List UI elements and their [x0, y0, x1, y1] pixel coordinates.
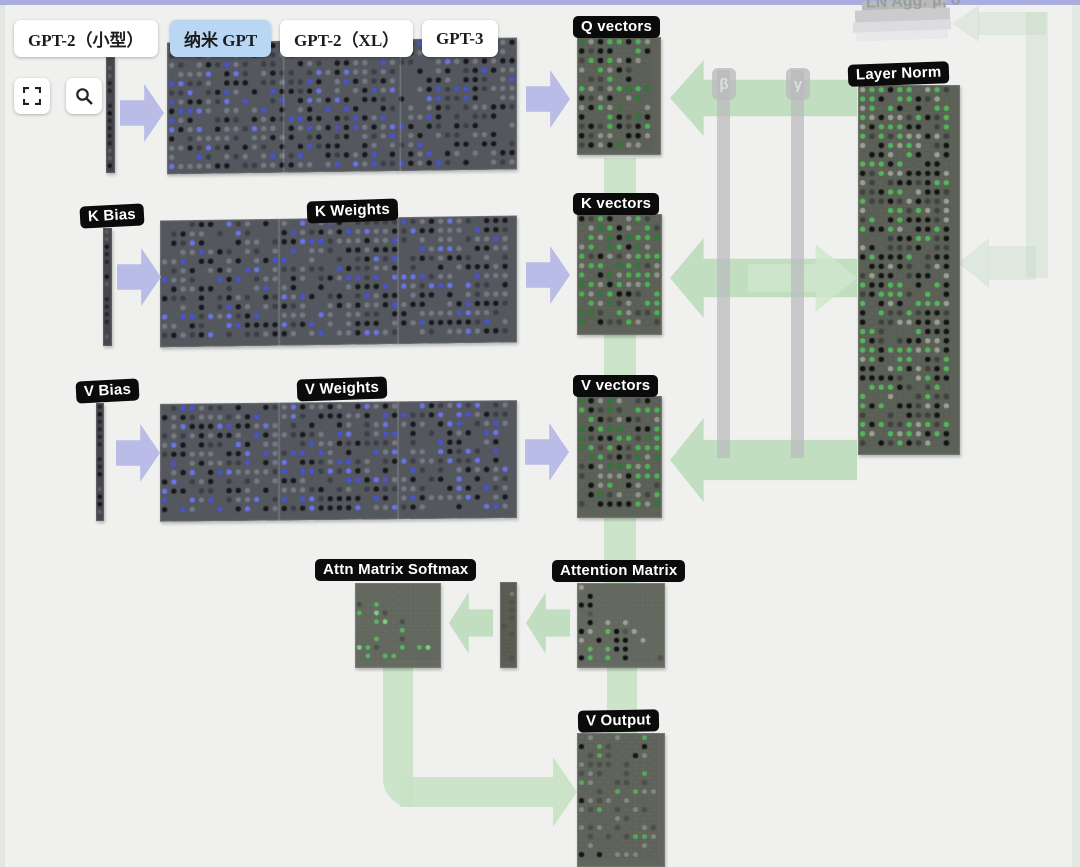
v-vectors-label: V vectors: [573, 375, 658, 397]
model-button-nano-gpt[interactable]: 纳米 GPT: [170, 20, 271, 57]
beta-symbol: β: [719, 76, 728, 93]
residual-pipe-mid: [988, 246, 1036, 280]
search-icon: [75, 87, 93, 105]
layer-norm-label: Layer Norm: [848, 61, 950, 87]
strip-to-softmax-arrow-icon: [449, 592, 493, 654]
q-weights-matrix[interactable]: [167, 38, 517, 175]
left-edge-strip: [0, 0, 5, 867]
k-bias-label: K Bias: [79, 203, 144, 228]
attn-softmax-matrix[interactable]: [355, 583, 441, 668]
residual-pipe-top-arrowhead-icon: [952, 5, 979, 42]
vbias-to-vweights-arrow-icon: [116, 424, 160, 482]
model-button-gpt2-small[interactable]: GPT-2（小型）: [14, 20, 158, 57]
gamma-symbol: γ: [794, 76, 802, 93]
gamma-pillar-cap: γ: [786, 68, 810, 100]
k-vectors-label: K vectors: [573, 193, 659, 215]
kweights-to-kvectors-arrow-icon: [526, 246, 570, 304]
q-vectors-label: Q vectors: [573, 16, 660, 38]
vweights-to-vvectors-arrow-icon: [525, 423, 569, 481]
beta-pillar-cap: β: [712, 68, 736, 100]
softmax-pipe-horizontal: [400, 777, 554, 807]
beta-pillar: [717, 70, 730, 458]
v-weights-label: V Weights: [297, 376, 388, 401]
residual-pipe-mid-arrowhead-icon: [958, 238, 989, 288]
layernorm-to-q-arrow-icon: [670, 60, 857, 136]
model-button-gpt3[interactable]: GPT-3: [422, 20, 498, 57]
model-button-gpt2-xl[interactable]: GPT-2（XL）: [280, 20, 413, 57]
residual-pipe-vertical: [1026, 12, 1048, 278]
v-output-label: V Output: [578, 709, 659, 732]
k-weights-label: K Weights: [307, 198, 399, 223]
v-bias-label: V Bias: [75, 378, 139, 403]
attn-strip-matrix[interactable]: [500, 582, 517, 668]
attn-softmax-label: Attn Matrix Softmax: [315, 559, 476, 581]
layernorm-to-v-arrow-icon: [670, 418, 857, 502]
layer-norm-matrix[interactable]: [858, 85, 960, 455]
fullscreen-button[interactable]: [14, 78, 50, 114]
v-bias-column[interactable]: [96, 403, 104, 521]
qweights-to-qvectors-arrow-icon: [526, 70, 570, 128]
v-weights-matrix[interactable]: [160, 400, 517, 522]
kbias-to-kweights-arrow-icon: [117, 248, 161, 306]
k-vectors-matrix[interactable]: [577, 214, 662, 335]
right-edge-strip: [1072, 0, 1080, 867]
gamma-pillar: [791, 70, 804, 458]
attention-matrix[interactable]: [577, 583, 665, 668]
qbias-to-qweights-arrow-icon: [120, 84, 164, 142]
attention-matrix-label: Attention Matrix: [552, 560, 685, 582]
q-bias-column[interactable]: [106, 57, 115, 173]
v-output-matrix[interactable]: [577, 733, 665, 867]
k-weights-matrix[interactable]: [160, 216, 517, 348]
attention-to-strip-arrow-icon: [526, 592, 570, 654]
ln-agg-slab-bar: [856, 29, 948, 41]
llm-visualization-stage[interactable]: β γ LN Agg: μ, σ Q vectors K Bias K Weig…: [0, 0, 1080, 867]
v-vectors-matrix[interactable]: [577, 396, 662, 518]
k-bias-column[interactable]: [103, 228, 112, 346]
q-vectors-matrix[interactable]: [577, 37, 661, 155]
search-button[interactable]: [66, 78, 102, 114]
softmax-pipe-arrowhead-icon: [553, 757, 577, 827]
fullscreen-icon: [23, 87, 41, 105]
